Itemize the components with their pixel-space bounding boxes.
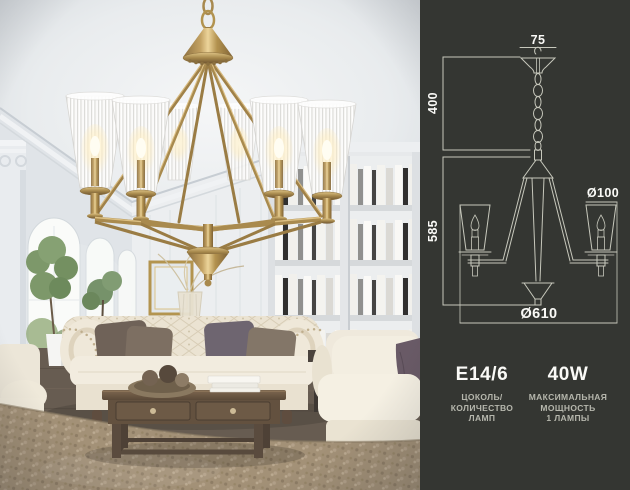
spec-power-value: 40W bbox=[525, 364, 611, 386]
spec-power-caption-line1: МАКСИМАЛЬНАЯ bbox=[525, 392, 611, 403]
vignette-overlay bbox=[0, 0, 420, 490]
bracket-400 bbox=[443, 57, 530, 150]
dim-label-canopy: 75 bbox=[531, 33, 546, 47]
dim-label-fixture-diameter: Ø610 bbox=[520, 306, 557, 322]
dim-label-height: 585 bbox=[426, 220, 440, 242]
diagram-shade-left bbox=[459, 205, 491, 276]
diagram-canopy bbox=[521, 58, 555, 73]
spec-socket-value: E14/6 bbox=[439, 364, 525, 386]
diagram-shade-right bbox=[585, 205, 617, 276]
spec-panel: 75 400 585 Ø100 Ø610 E14/6 ЦОКОЛЬ/ КОЛИЧ… bbox=[420, 0, 630, 490]
diagram-body bbox=[468, 160, 608, 305]
diagram-chain bbox=[534, 74, 543, 161]
hook bbox=[535, 47, 541, 54]
dim-label-shade-diameter: Ø100 bbox=[587, 186, 619, 200]
dim-label-suspension: 400 bbox=[426, 92, 440, 114]
interior-scene bbox=[0, 0, 420, 490]
spec-power: 40W МАКСИМАЛЬНАЯ МОЩНОСТЬ 1 ЛАМПЫ bbox=[525, 364, 611, 424]
spec-socket-caption-line3: ЛАМП bbox=[439, 413, 525, 424]
spec-socket: E14/6 ЦОКОЛЬ/ КОЛИЧЕСТВО ЛАМП bbox=[439, 364, 525, 424]
spec-power-caption-line3: 1 ЛАМПЫ bbox=[525, 413, 611, 424]
spec-socket-caption-line2: КОЛИЧЕСТВО bbox=[439, 403, 525, 414]
spec-power-caption: МАКСИМАЛЬНАЯ МОЩНОСТЬ 1 ЛАМПЫ bbox=[525, 392, 611, 424]
spec-socket-caption: ЦОКОЛЬ/ КОЛИЧЕСТВО ЛАМП bbox=[439, 392, 525, 424]
product-card: 75 400 585 Ø100 Ø610 E14/6 ЦОКОЛЬ/ КОЛИЧ… bbox=[0, 0, 630, 490]
product-photo bbox=[0, 0, 420, 490]
dimension-diagram: 75 400 585 Ø100 Ø610 bbox=[420, 0, 630, 350]
spec-power-caption-line2: МОЩНОСТЬ bbox=[525, 403, 611, 414]
spec-socket-caption-line1: ЦОКОЛЬ/ bbox=[439, 392, 525, 403]
spec-list: E14/6 ЦОКОЛЬ/ КОЛИЧЕСТВО ЛАМП 40W МАКСИМ… bbox=[420, 364, 630, 424]
